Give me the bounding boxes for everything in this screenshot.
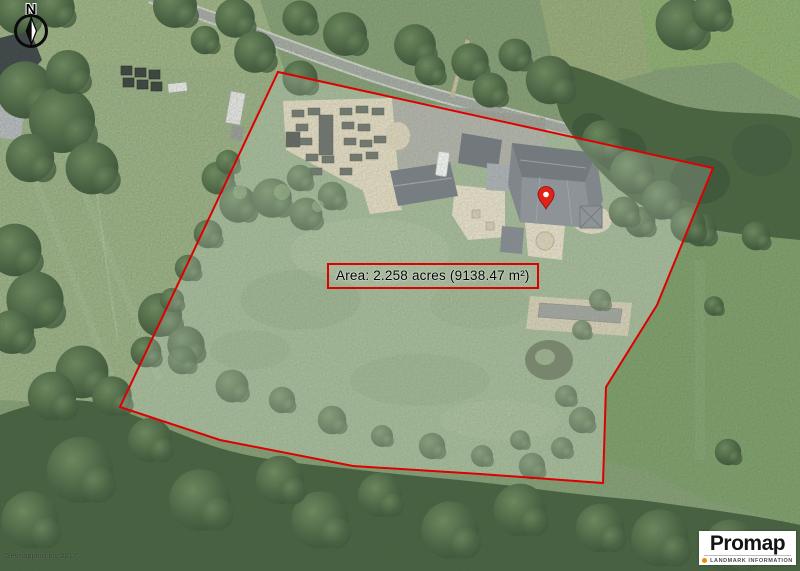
north-arrow-icon: N [6,1,56,53]
promap-logo: Promap LANDMARK INFORMATION [699,531,796,565]
area-label[interactable]: Area: 2.258 acres (9138.47 m²) [327,263,539,289]
landmark-dot-icon [702,558,707,563]
imagery-attribution: Getmapping plc 2017 [5,553,77,560]
aerial-map[interactable]: N Area: 2.258 acres (9138.47 m²) Getmapp… [0,0,800,571]
landmark-tagline: LANDMARK INFORMATION [699,558,796,564]
promap-wordmark: Promap [704,534,791,556]
landmark-tagline-text: LANDMARK INFORMATION [710,558,793,564]
